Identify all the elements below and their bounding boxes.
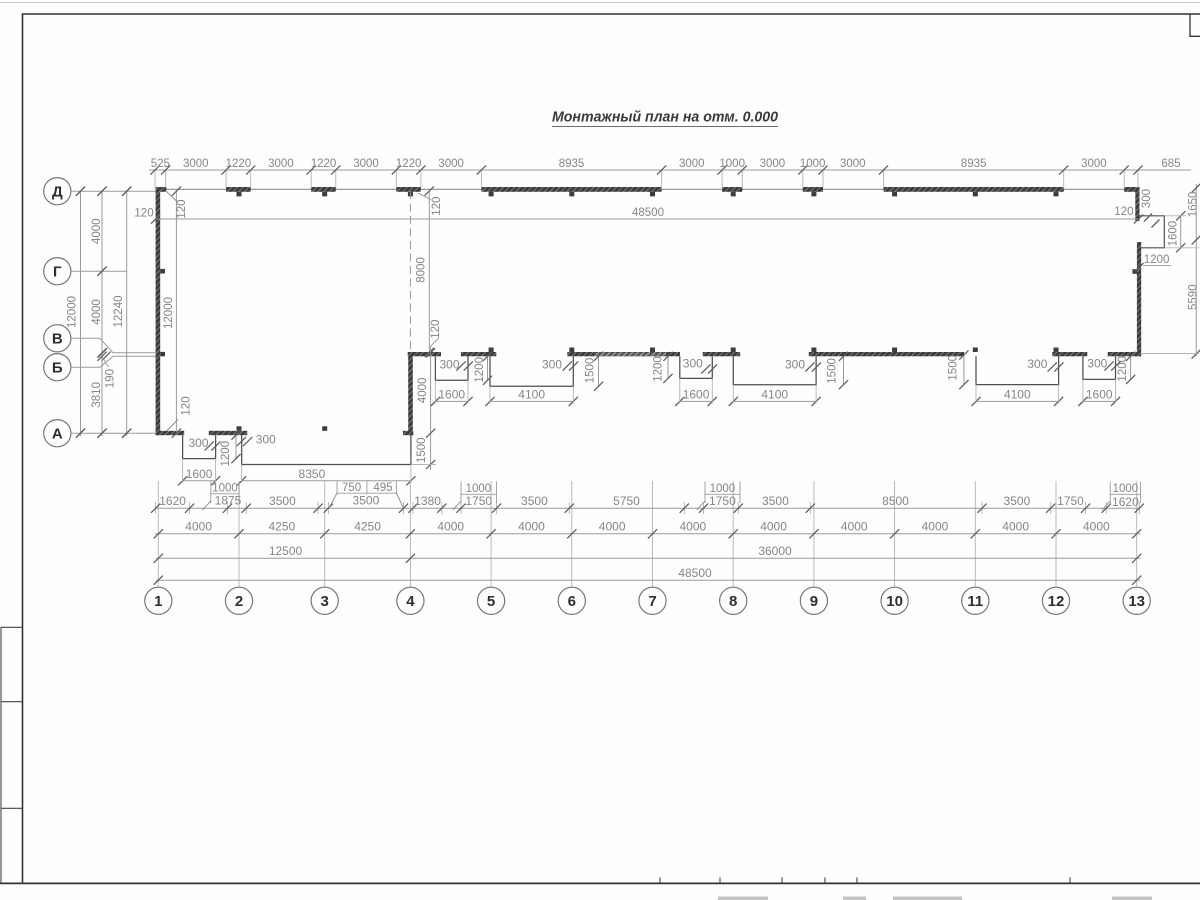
- svg-text:Б: Б: [52, 360, 63, 377]
- svg-text:36000: 36000: [758, 544, 792, 558]
- svg-text:1600: 1600: [1086, 387, 1113, 401]
- svg-text:3: 3: [321, 593, 329, 610]
- svg-text:1200: 1200: [220, 441, 232, 467]
- svg-text:120: 120: [430, 320, 442, 339]
- svg-text:1650: 1650: [1188, 192, 1200, 218]
- svg-text:300: 300: [542, 358, 562, 372]
- svg-text:8935: 8935: [961, 158, 987, 170]
- svg-text:120: 120: [1114, 206, 1133, 218]
- svg-text:300: 300: [683, 357, 703, 371]
- svg-text:12: 12: [1048, 593, 1065, 610]
- svg-text:685: 685: [1161, 158, 1180, 170]
- svg-text:300: 300: [1027, 357, 1047, 371]
- svg-text:1220: 1220: [396, 158, 422, 170]
- svg-text:120: 120: [134, 207, 153, 219]
- svg-text:8: 8: [729, 593, 737, 610]
- svg-text:120: 120: [431, 197, 443, 216]
- svg-text:4000: 4000: [417, 378, 429, 404]
- svg-text:120: 120: [176, 199, 188, 218]
- svg-text:1200: 1200: [1144, 254, 1170, 266]
- svg-text:4000: 4000: [599, 520, 626, 534]
- svg-text:1750: 1750: [465, 494, 492, 508]
- svg-text:13: 13: [1128, 593, 1145, 610]
- svg-text:3000: 3000: [183, 158, 209, 170]
- svg-text:4100: 4100: [518, 387, 545, 401]
- svg-text:12240: 12240: [113, 296, 125, 328]
- svg-text:3500: 3500: [521, 494, 548, 508]
- svg-text:2: 2: [235, 593, 243, 610]
- svg-text:1200: 1200: [474, 357, 486, 383]
- svg-text:4000: 4000: [91, 299, 103, 325]
- svg-text:3000: 3000: [268, 158, 294, 170]
- svg-text:1600: 1600: [438, 387, 465, 401]
- svg-text:525: 525: [151, 158, 170, 170]
- svg-text:120: 120: [181, 396, 193, 415]
- svg-text:750: 750: [342, 482, 361, 494]
- svg-text:6: 6: [568, 593, 576, 610]
- svg-text:1500: 1500: [948, 355, 960, 381]
- svg-text:3000: 3000: [438, 158, 464, 170]
- svg-text:Монтажный план на отм. 0.000: Монтажный план на отм. 0.000: [552, 109, 779, 126]
- svg-text:4000: 4000: [91, 218, 103, 244]
- svg-text:8935: 8935: [559, 158, 585, 170]
- svg-text:300: 300: [785, 358, 805, 372]
- svg-text:495: 495: [373, 482, 392, 494]
- svg-text:1000: 1000: [800, 158, 826, 170]
- svg-text:190: 190: [105, 369, 117, 388]
- svg-text:1000: 1000: [719, 158, 745, 170]
- svg-text:4: 4: [406, 593, 415, 610]
- svg-text:В: В: [52, 331, 63, 348]
- svg-text:3500: 3500: [353, 494, 380, 508]
- svg-text:1600: 1600: [683, 387, 710, 401]
- svg-text:300: 300: [1141, 189, 1153, 208]
- svg-text:1620: 1620: [159, 494, 186, 508]
- svg-text:1500: 1500: [416, 437, 428, 463]
- svg-text:11: 11: [967, 593, 983, 610]
- svg-text:1600: 1600: [1167, 221, 1179, 247]
- svg-text:А: А: [52, 426, 63, 443]
- svg-text:10: 10: [886, 593, 903, 610]
- svg-text:1600: 1600: [186, 467, 213, 481]
- svg-text:4000: 4000: [437, 520, 464, 534]
- svg-text:8000: 8000: [416, 257, 428, 283]
- svg-text:300: 300: [256, 433, 276, 447]
- svg-text:48500: 48500: [632, 207, 664, 219]
- svg-text:5750: 5750: [613, 494, 640, 508]
- svg-text:3000: 3000: [353, 158, 379, 170]
- svg-text:4000: 4000: [679, 520, 706, 534]
- svg-text:1620: 1620: [1112, 495, 1139, 509]
- svg-text:3000: 3000: [760, 158, 786, 170]
- svg-text:3500: 3500: [1004, 494, 1031, 508]
- svg-text:4000: 4000: [922, 520, 949, 534]
- svg-text:3000: 3000: [840, 158, 866, 170]
- svg-text:3500: 3500: [269, 494, 296, 508]
- svg-text:1500: 1500: [827, 358, 839, 384]
- svg-text:1875: 1875: [215, 494, 242, 508]
- svg-text:4000: 4000: [760, 520, 787, 534]
- svg-text:7: 7: [648, 593, 656, 610]
- svg-text:1200: 1200: [652, 356, 664, 382]
- svg-text:3810: 3810: [91, 382, 103, 408]
- svg-text:1500: 1500: [584, 358, 596, 384]
- svg-text:9: 9: [810, 593, 818, 610]
- svg-text:1: 1: [154, 593, 162, 610]
- svg-text:1200: 1200: [1117, 356, 1129, 382]
- svg-text:Г: Г: [53, 264, 62, 281]
- svg-text:8350: 8350: [299, 467, 326, 481]
- svg-text:4000: 4000: [518, 520, 545, 534]
- svg-text:4100: 4100: [1004, 387, 1031, 401]
- svg-text:1220: 1220: [311, 158, 337, 170]
- svg-text:300: 300: [188, 436, 208, 450]
- svg-text:4100: 4100: [761, 387, 788, 401]
- svg-text:12000: 12000: [66, 296, 78, 328]
- svg-text:Д: Д: [52, 184, 63, 201]
- svg-text:48500: 48500: [678, 566, 712, 580]
- svg-text:3000: 3000: [679, 158, 705, 170]
- svg-text:4000: 4000: [1083, 520, 1110, 534]
- svg-text:1380: 1380: [414, 494, 441, 508]
- svg-text:4250: 4250: [268, 520, 295, 534]
- svg-text:1750: 1750: [1057, 494, 1084, 508]
- svg-text:4000: 4000: [185, 520, 212, 534]
- svg-text:12000: 12000: [163, 297, 175, 329]
- svg-text:5590: 5590: [1188, 284, 1200, 310]
- svg-text:12500: 12500: [269, 544, 303, 558]
- svg-text:1750: 1750: [709, 494, 736, 508]
- svg-text:4000: 4000: [1002, 520, 1029, 534]
- svg-text:300: 300: [439, 357, 459, 371]
- svg-text:3500: 3500: [762, 494, 789, 508]
- svg-text:300: 300: [1087, 356, 1107, 370]
- svg-text:8500: 8500: [882, 494, 909, 508]
- svg-text:3000: 3000: [1081, 158, 1107, 170]
- svg-text:1000: 1000: [1113, 483, 1139, 495]
- svg-text:5: 5: [487, 593, 495, 610]
- svg-text:1220: 1220: [226, 158, 252, 170]
- svg-text:4000: 4000: [841, 520, 868, 534]
- svg-text:4250: 4250: [354, 520, 381, 534]
